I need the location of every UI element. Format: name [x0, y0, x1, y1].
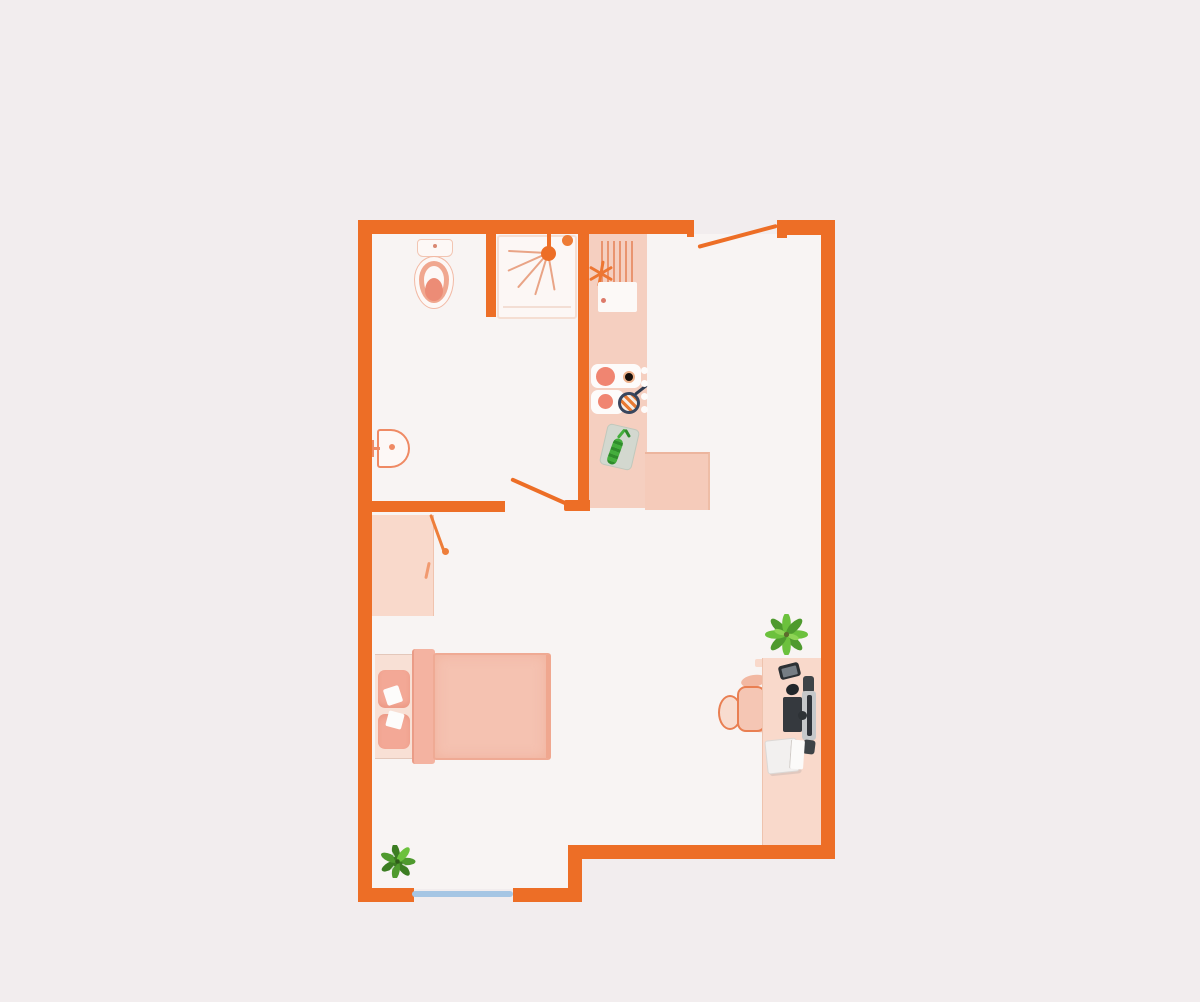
control-knob: [623, 371, 635, 383]
wardrobe: [372, 515, 434, 616]
toilet-tank: [417, 239, 453, 257]
pillow: [378, 670, 410, 708]
wall-kitchen-foot: [564, 500, 590, 511]
wall-top-left-cap: [687, 220, 694, 237]
kitchen-sink: [598, 282, 637, 312]
wall-kitchen: [578, 233, 589, 510]
wall-top-right-cap: [777, 220, 787, 238]
shower-tray-edge: [503, 306, 571, 308]
counter-handle: [641, 393, 648, 400]
counter-handle: [641, 406, 648, 413]
toilet-bowl-water: [425, 278, 443, 301]
kitchen-counter-l: [645, 452, 710, 510]
printer-paper: [789, 740, 805, 770]
toilet-flush-button: [433, 244, 437, 248]
shower-knob: [562, 235, 573, 246]
window: [412, 891, 513, 897]
floor-plan-canvas: [0, 0, 1200, 1002]
wall-bathroom-bottom: [358, 501, 505, 512]
wall-right: [821, 220, 835, 859]
blanket-fold: [412, 649, 435, 764]
plant-pot-center: [784, 632, 789, 637]
stove-top: [591, 364, 641, 388]
shower-tray: [497, 235, 577, 319]
plant-pot-center: [395, 859, 400, 864]
burner-small: [598, 394, 613, 409]
wall-bathroom-divider: [486, 233, 496, 317]
potted-plant-floor: [379, 845, 416, 878]
monitor-stand: [798, 711, 807, 720]
sink-drain: [601, 298, 606, 303]
wardrobe-door-knob: [442, 548, 449, 555]
pillow-fold: [385, 710, 405, 730]
counter-handle: [641, 380, 648, 387]
apartment-floor-plan: [0, 0, 1200, 1002]
counter-handle: [641, 367, 648, 374]
burner-large: [596, 367, 615, 386]
frying-pan: [618, 392, 640, 414]
basin-drain: [389, 444, 395, 450]
potted-plant-desk: [764, 614, 809, 655]
shower-head-icon: [541, 246, 556, 261]
wall-left: [358, 220, 372, 902]
wall-bottom-right: [568, 845, 835, 859]
wall-bottom-left: [358, 888, 414, 902]
monitor: [802, 691, 816, 740]
laptop-screen: [781, 665, 798, 677]
monitor-screen: [807, 695, 812, 736]
pillow: [378, 714, 410, 749]
wall-top-left: [358, 220, 694, 234]
bed-blanket: [433, 653, 551, 760]
pillow-fold: [383, 685, 403, 706]
